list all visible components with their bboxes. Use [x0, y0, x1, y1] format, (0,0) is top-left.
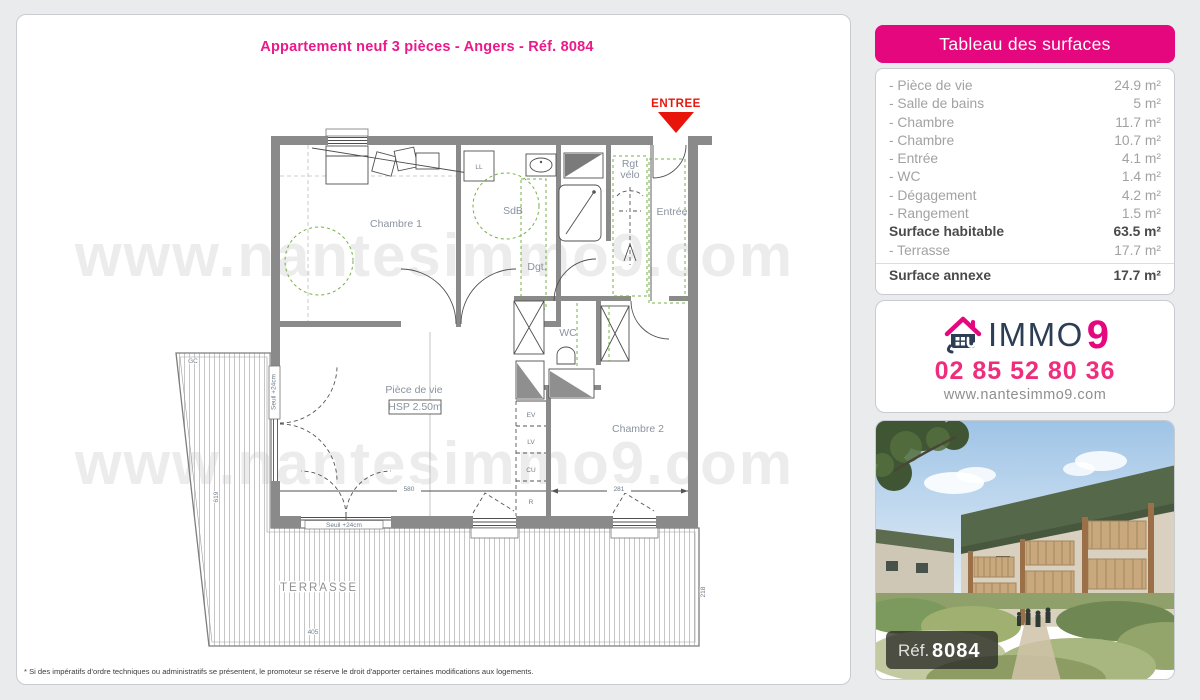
kitchen-r-label: R: [529, 499, 534, 506]
brand-immo-text: IMMO: [988, 316, 1084, 354]
surface-label: - Rangement: [889, 205, 969, 223]
entry-marker: ENTREE: [651, 98, 701, 133]
ref-label: Réf.: [898, 641, 929, 660]
surface-value: 24.9 m²: [1114, 77, 1161, 95]
surface-row: - Dégagement4.2 m²: [889, 187, 1161, 205]
surface-value: 10.7 m²: [1114, 132, 1161, 150]
surface-row: - Terrasse17.7 m²: [889, 242, 1161, 260]
surface-label: - Dégagement: [889, 187, 976, 205]
dim-405: 405: [308, 629, 319, 636]
kitchen-cu-label: CU: [526, 467, 536, 474]
floor-plan-card: Appartement neuf 3 pièces - Angers - Réf…: [16, 14, 851, 685]
agency-contact-card: IMMO9 02 85 52 80 36 www.nantesimmo9.com: [875, 300, 1175, 413]
surface-row: - Chambre11.7 m²: [889, 114, 1161, 132]
surface-value: 17.7 m²: [1113, 267, 1161, 285]
sdb-label: SdB: [503, 205, 523, 217]
property-photo: Réf. 8084: [876, 421, 1175, 680]
kitchen-lv-label: LV: [527, 439, 535, 446]
entry-arrow-icon: [658, 112, 694, 133]
surface-label: - Chambre: [889, 114, 954, 132]
surface-value: 63.5 m²: [1113, 223, 1161, 241]
property-photo-card: Réf. 8084: [875, 420, 1175, 680]
surface-label: - Chambre: [889, 132, 954, 150]
fixtures: LL: [280, 145, 688, 516]
entree-room-label: Entrée: [657, 206, 688, 218]
surface-row: - Salle de bains5 m²: [889, 95, 1161, 113]
ref-value: 8084: [932, 640, 981, 662]
divider: [876, 263, 1174, 264]
brand-9-text: 9: [1087, 315, 1109, 355]
surfaces-header: Tableau des surfaces: [875, 25, 1175, 63]
entree-big-label: ENTREE: [651, 98, 701, 110]
dgt-label: Dgt.: [527, 261, 546, 273]
website-link[interactable]: www.nantesimmo9.com: [876, 387, 1174, 403]
dim-218: 218: [700, 586, 707, 597]
dim-281: 281: [614, 486, 625, 493]
walls: [271, 136, 712, 528]
wc-label: WC: [559, 327, 577, 339]
surface-row: - Chambre10.7 m²: [889, 132, 1161, 150]
surface-label: Surface habitable: [889, 223, 1004, 241]
surface-label: - WC: [889, 168, 920, 186]
surface-value: 5 m²: [1133, 95, 1161, 113]
piece-de-vie-label: Pièce de vie: [385, 384, 442, 396]
hsp-label: HSP 2.50m: [388, 401, 442, 413]
surface-label: Surface annexe: [889, 267, 991, 285]
floor-plan: TERRASSE GC 619 405 218 ENTREE: [17, 15, 852, 686]
surface-label: - Terrasse: [889, 242, 950, 260]
surface-value: 1.5 m²: [1122, 205, 1161, 223]
disclaimer-text: * Si des impératifs d'ordre techniques o…: [24, 667, 664, 676]
terrace-area: TERRASSE GC 619 405 218: [176, 353, 707, 646]
chambre2-label: Chambre 2: [612, 423, 664, 435]
surface-label: - Entrée: [889, 150, 938, 168]
surface-row: - Entrée4.1 m²: [889, 150, 1161, 168]
surfaces-panel: Tableau des surfaces - Pièce de vie24.9 …: [875, 25, 1175, 295]
seuil-vertical-label: Seuil +24cm: [271, 374, 278, 410]
surface-value: 11.7 m²: [1115, 114, 1161, 132]
ll-label: LL: [475, 164, 483, 171]
surface-value: 17.7 m²: [1114, 242, 1161, 260]
terrasse-label: TERRASSE: [280, 582, 358, 594]
house-logo-icon: [941, 313, 985, 357]
surface-label: - Pièce de vie: [889, 77, 973, 95]
gc-label: GC: [188, 358, 198, 365]
chambre1-label: Chambre 1: [370, 218, 422, 230]
surface-total-annexe: Surface annexe17.7 m²: [889, 267, 1161, 285]
surface-value: 4.2 m²: [1122, 187, 1161, 205]
rgt-velo-label2: vélo: [620, 169, 639, 181]
seuil-horizontal-label: Seuil +24cm: [326, 522, 362, 529]
surface-value: 4.1 m²: [1122, 150, 1161, 168]
kitchen-ev-label: EV: [527, 412, 536, 419]
surface-total-habitable: Surface habitable63.5 m²: [889, 223, 1161, 241]
surface-row: - Rangement1.5 m²: [889, 205, 1161, 223]
surface-value: 1.4 m²: [1122, 168, 1161, 186]
surface-row: - WC1.4 m²: [889, 168, 1161, 186]
surface-label: - Salle de bains: [889, 95, 984, 113]
phone-number[interactable]: 02 85 52 80 36: [876, 357, 1174, 386]
surfaces-list: - Pièce de vie24.9 m² - Salle de bains5 …: [875, 68, 1175, 295]
dim-580: 580: [404, 486, 415, 493]
dim-619: 619: [213, 491, 220, 502]
agency-logo: IMMO9: [876, 313, 1174, 357]
surface-row: - Pièce de vie24.9 m²: [889, 77, 1161, 95]
